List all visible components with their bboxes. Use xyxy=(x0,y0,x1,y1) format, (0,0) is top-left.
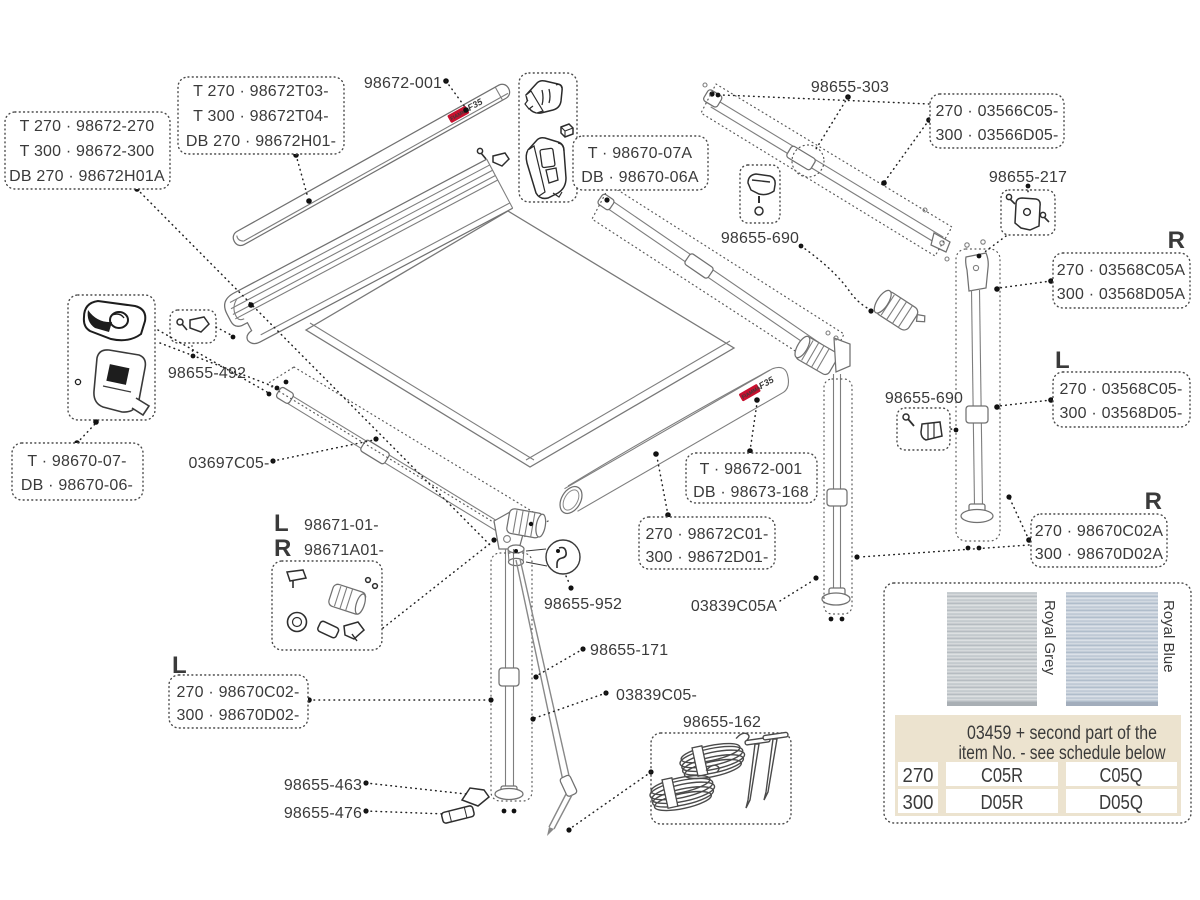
svg-text:L: L xyxy=(1055,347,1070,374)
svg-text:03839C05A: 03839C05A xyxy=(691,598,777,615)
svg-text:T 270 · 98672-270: T 270 · 98672-270 xyxy=(20,118,155,135)
svg-text:C05Q: C05Q xyxy=(1100,764,1143,787)
svg-text:R: R xyxy=(1145,488,1162,515)
svg-text:03839C05-: 03839C05- xyxy=(616,687,697,704)
svg-text:L: L xyxy=(274,510,289,537)
svg-text:03459 + second part of the: 03459 + second part of the xyxy=(967,722,1157,744)
svg-text:98671A01-: 98671A01- xyxy=(304,542,384,559)
svg-text:98655-162: 98655-162 xyxy=(683,714,761,731)
svg-text:300: 300 xyxy=(903,791,934,814)
svg-text:D05Q: D05Q xyxy=(1099,791,1143,814)
svg-text:R: R xyxy=(1168,227,1185,254)
svg-text:270 · 98670C02-: 270 · 98670C02- xyxy=(176,684,299,701)
svg-text:98655-303: 98655-303 xyxy=(811,79,889,96)
svg-text:98655-492: 98655-492 xyxy=(168,365,246,382)
svg-text:Royal Grey: Royal Grey xyxy=(1041,600,1058,676)
svg-text:T 270 · 98672T03-: T 270 · 98672T03- xyxy=(193,83,329,100)
svg-text:DB · 98673-168: DB · 98673-168 xyxy=(693,484,809,501)
svg-text:98655-476: 98655-476 xyxy=(284,805,362,822)
svg-text:DB · 98670-06-: DB · 98670-06- xyxy=(21,477,133,494)
svg-text:300 · 98672D01-: 300 · 98672D01- xyxy=(645,549,768,566)
svg-text:270 · 03568C05A: 270 · 03568C05A xyxy=(1057,262,1186,279)
svg-text:300 · 98670D02-: 300 · 98670D02- xyxy=(176,707,299,724)
svg-text:Royal Blue: Royal Blue xyxy=(1160,600,1177,673)
svg-text:T · 98670-07A: T · 98670-07A xyxy=(588,145,693,162)
svg-text:DB · 98670-06A: DB · 98670-06A xyxy=(581,169,699,186)
svg-text:D05R: D05R xyxy=(981,791,1024,814)
svg-text:300 · 98670D02A: 300 · 98670D02A xyxy=(1035,546,1164,563)
svg-text:DB 270 · 98672H01-: DB 270 · 98672H01- xyxy=(186,133,336,150)
svg-text:270 · 03568C05-: 270 · 03568C05- xyxy=(1059,381,1182,398)
svg-text:300 · 03566D05-: 300 · 03566D05- xyxy=(935,127,1058,144)
svg-text:98655-690: 98655-690 xyxy=(721,230,799,247)
svg-text:98655-463: 98655-463 xyxy=(284,777,362,794)
svg-text:98655-690: 98655-690 xyxy=(885,390,963,407)
svg-text:T · 98672-001: T · 98672-001 xyxy=(700,461,803,478)
svg-text:98655-952: 98655-952 xyxy=(544,596,622,613)
svg-text:DB 270 · 98672H01A: DB 270 · 98672H01A xyxy=(9,168,165,185)
svg-text:300 · 03568D05-: 300 · 03568D05- xyxy=(1059,405,1182,422)
svg-text:270: 270 xyxy=(903,764,934,787)
svg-text:98671-01-: 98671-01- xyxy=(304,517,379,534)
svg-text:270 · 03566C05-: 270 · 03566C05- xyxy=(935,103,1058,120)
svg-text:C05R: C05R xyxy=(981,764,1023,787)
svg-text:T 300 · 98672-300: T 300 · 98672-300 xyxy=(20,143,155,160)
svg-text:T · 98670-07-: T · 98670-07- xyxy=(27,453,126,470)
svg-text:item No. - see schedule below: item No. - see schedule below xyxy=(959,742,1167,764)
svg-text:270 · 98670C02A: 270 · 98670C02A xyxy=(1035,523,1164,540)
svg-text:R: R xyxy=(274,535,291,562)
svg-text:T 300 · 98672T04-: T 300 · 98672T04- xyxy=(193,108,329,125)
svg-text:03697C05-: 03697C05- xyxy=(189,455,270,472)
svg-text:98655-217: 98655-217 xyxy=(989,169,1067,186)
svg-text:270 · 98672C01-: 270 · 98672C01- xyxy=(645,526,768,543)
svg-text:300 · 03568D05A: 300 · 03568D05A xyxy=(1057,286,1186,303)
svg-text:98655-171: 98655-171 xyxy=(590,642,668,659)
svg-text:98672-001: 98672-001 xyxy=(364,75,442,92)
